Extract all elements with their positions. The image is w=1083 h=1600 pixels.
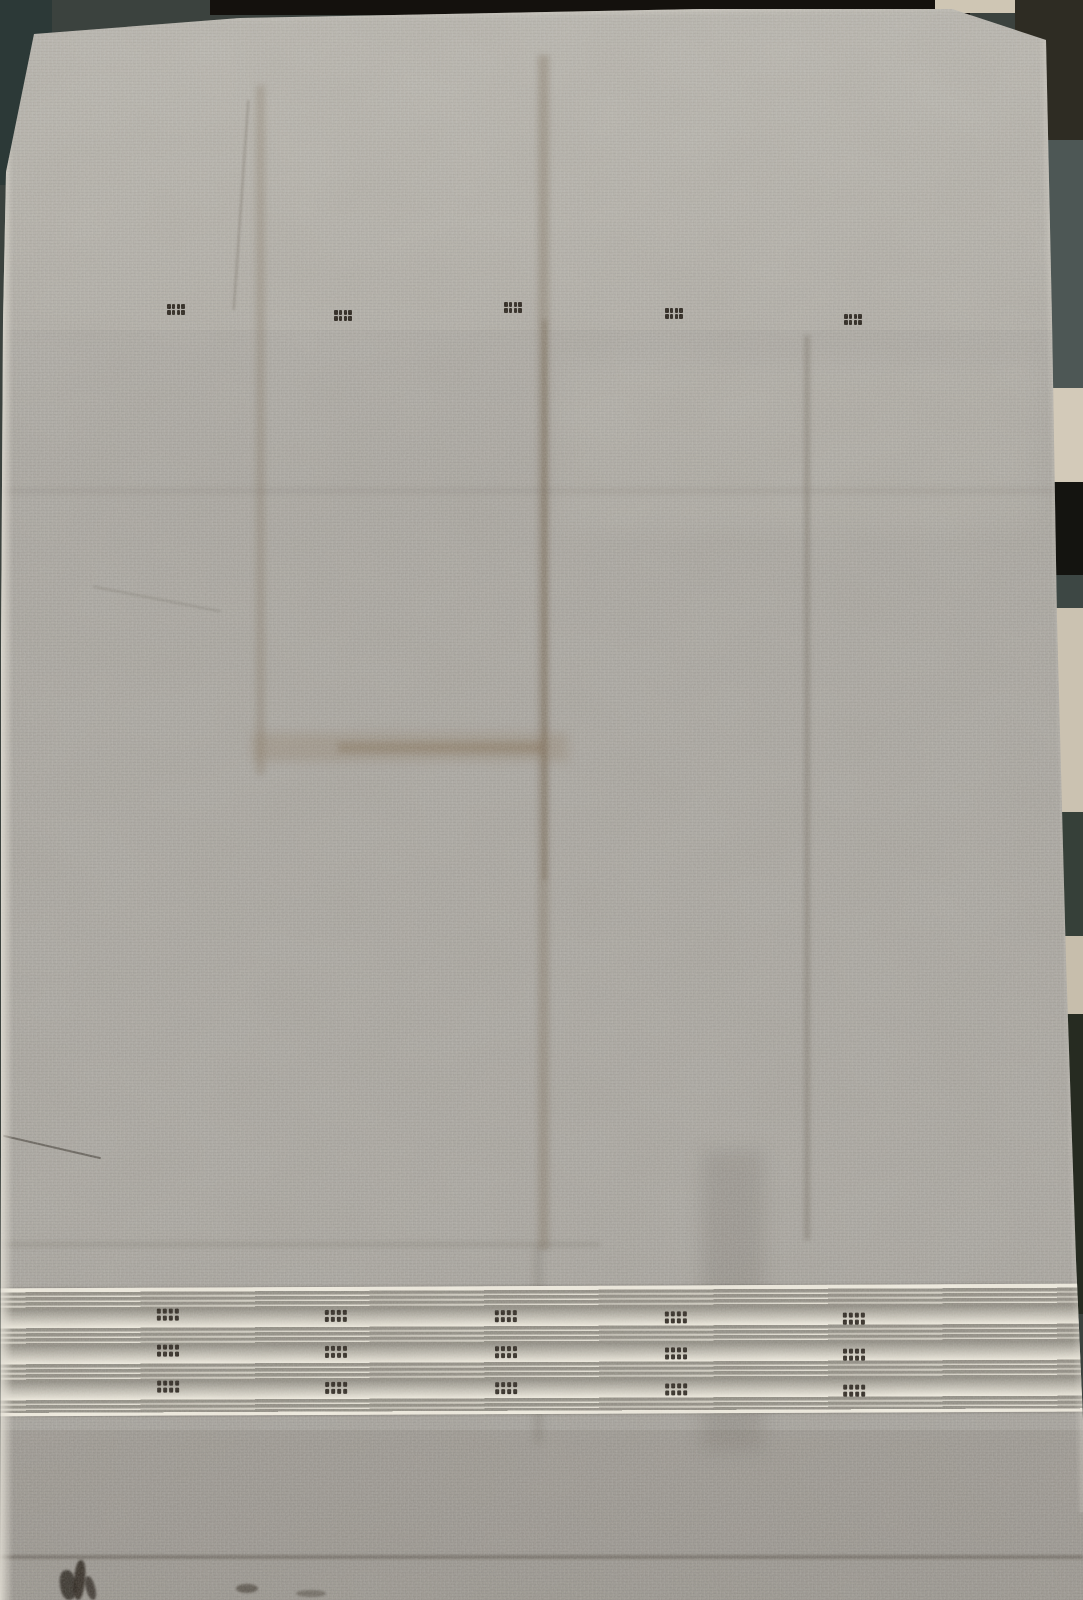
motif-dot (509, 308, 512, 313)
motif-dot (181, 304, 184, 309)
motif-dot (670, 308, 673, 313)
motif-dot (334, 310, 337, 315)
motif-dot (849, 320, 852, 325)
motif-dot (858, 314, 861, 319)
motif-dot (172, 304, 175, 309)
motif-dot (514, 308, 517, 313)
motif-dot (334, 316, 337, 321)
motif-dot (344, 316, 347, 321)
top-motif (167, 304, 184, 315)
top-motif (334, 310, 351, 321)
top-motif-row (0, 0, 1083, 1600)
motif-dot (167, 304, 170, 309)
motif-dot (670, 314, 673, 319)
motif-dot (514, 302, 517, 307)
motif-dot (854, 320, 857, 325)
top-motif (504, 302, 521, 313)
motif-dot (854, 314, 857, 319)
motif-dot (679, 314, 682, 319)
motif-dot (518, 302, 521, 307)
motif-dot (339, 316, 342, 321)
motif-dot (675, 314, 678, 319)
motif-dot (177, 304, 180, 309)
motif-dot (509, 302, 512, 307)
motif-dot (518, 308, 521, 313)
motif-dot (348, 316, 351, 321)
motif-dot (344, 310, 347, 315)
motif-dot (348, 310, 351, 315)
motif-dot (504, 302, 507, 307)
motif-dot (172, 310, 175, 315)
photo-canvas (0, 0, 1083, 1600)
top-motif (844, 314, 861, 325)
motif-dot (665, 308, 668, 313)
top-motif (665, 308, 682, 319)
motif-dot (339, 310, 342, 315)
motif-dot (167, 310, 170, 315)
motif-dot (504, 308, 507, 313)
motif-dot (665, 314, 668, 319)
motif-dot (181, 310, 184, 315)
motif-dot (849, 314, 852, 319)
motif-dot (844, 314, 847, 319)
motif-dot (844, 320, 847, 325)
fabric (0, 0, 1083, 1600)
motif-dot (675, 308, 678, 313)
motif-dot (177, 310, 180, 315)
motif-dot (679, 308, 682, 313)
motif-dot (858, 320, 861, 325)
